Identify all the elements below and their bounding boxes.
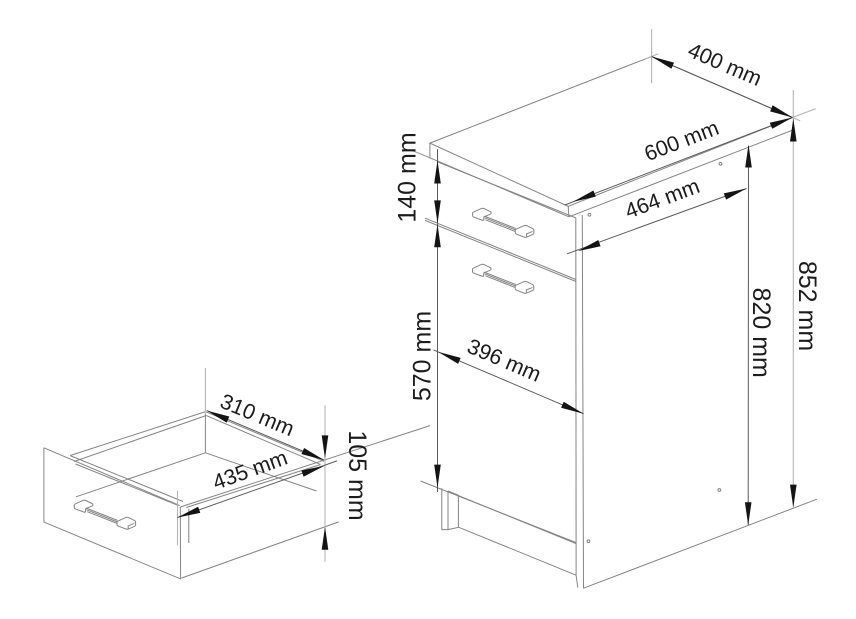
svg-text:852 mm: 852 mm (793, 261, 821, 351)
svg-text:396 mm: 396 mm (464, 334, 545, 387)
svg-text:140 mm: 140 mm (394, 132, 422, 222)
svg-text:820 mm: 820 mm (747, 288, 775, 378)
svg-text:105 mm: 105 mm (343, 430, 371, 520)
svg-text:600 mm: 600 mm (641, 116, 722, 166)
svg-text:570 mm: 570 mm (408, 311, 436, 401)
svg-text:400 mm: 400 mm (684, 38, 765, 91)
svg-text:464 mm: 464 mm (622, 174, 703, 224)
